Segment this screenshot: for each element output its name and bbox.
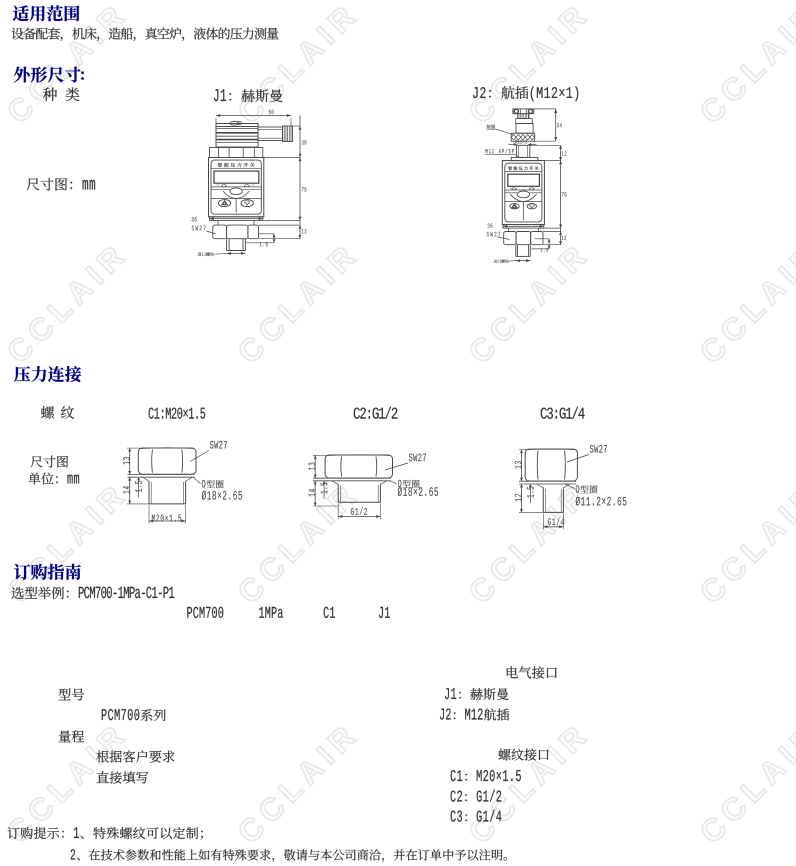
svg-text:CCLAIR: CCLAIR: [462, 475, 597, 610]
svg-text:CCLAIR: CCLAIR: [462, 0, 597, 130]
svg-text:CCLAIR: CCLAIR: [231, 235, 366, 370]
svg-text:CCLAIR: CCLAIR: [693, 235, 796, 370]
svg-text:CCLAIR: CCLAIR: [693, 0, 796, 130]
svg-text:CCLAIR: CCLAIR: [0, 235, 135, 370]
svg-text:CCLAIR: CCLAIR: [693, 715, 796, 850]
svg-text:CCLAIR: CCLAIR: [462, 235, 597, 370]
svg-text:CCLAIR: CCLAIR: [231, 0, 366, 130]
svg-text:CCLAIR: CCLAIR: [0, 475, 135, 610]
svg-text:CCLAIR: CCLAIR: [462, 715, 597, 850]
svg-text:CCLAIR: CCLAIR: [693, 475, 796, 610]
svg-text:CCLAIR: CCLAIR: [231, 715, 366, 850]
svg-text:CCLAIR: CCLAIR: [231, 475, 366, 610]
